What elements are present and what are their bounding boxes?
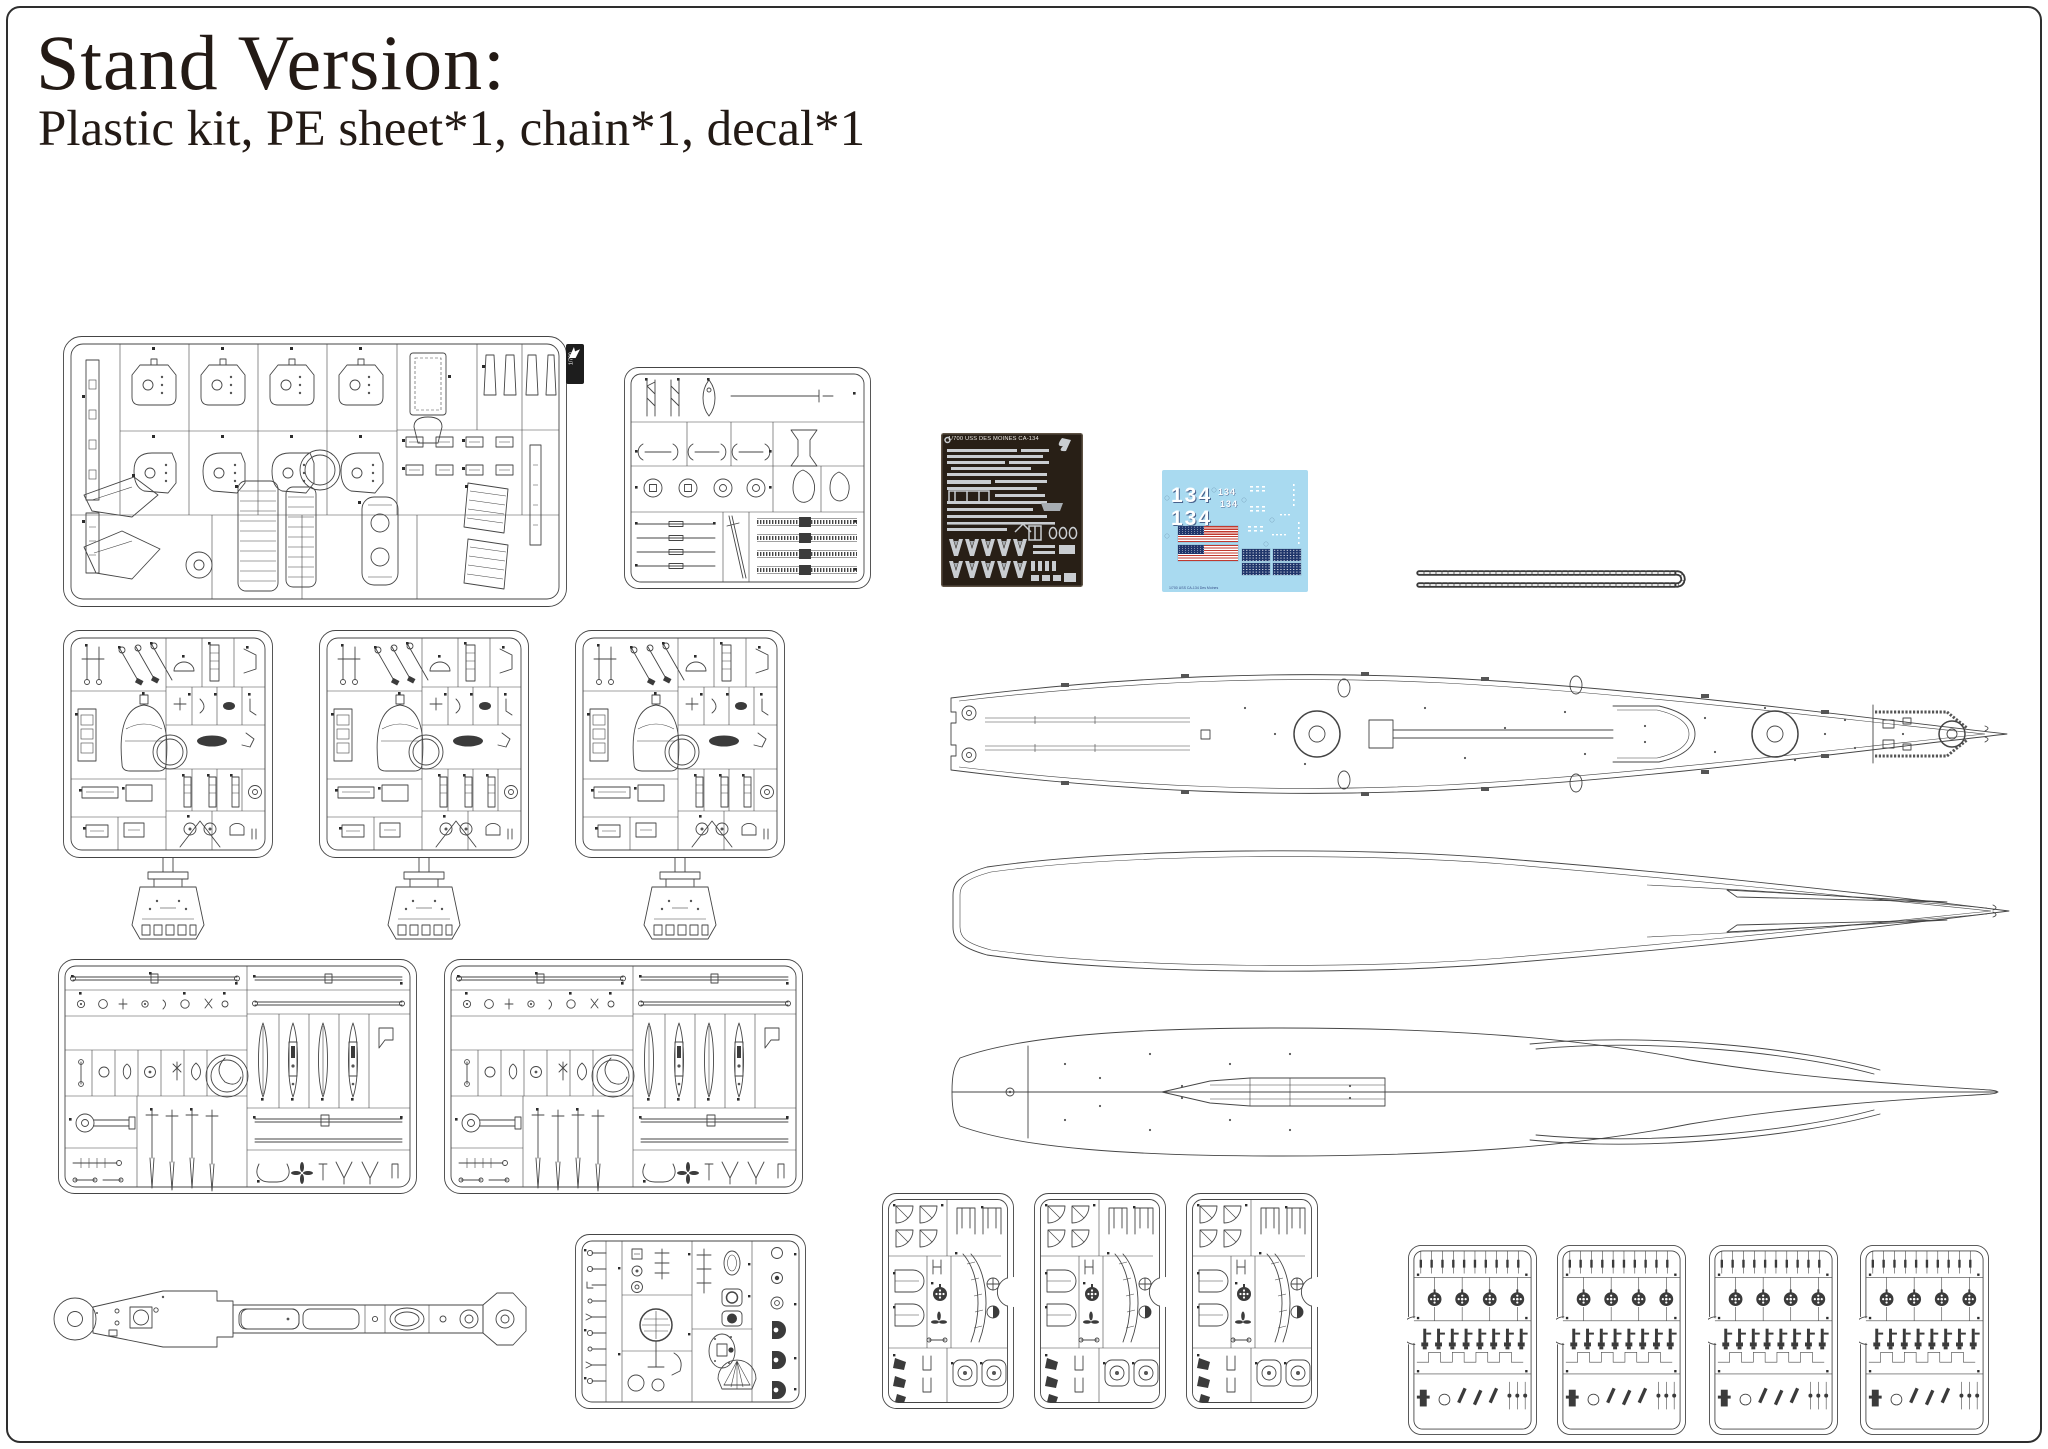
page-title: Stand Version: bbox=[36, 18, 506, 108]
pe-sheet: 1/700 USS DES MOINES CA-134 bbox=[941, 433, 1083, 587]
decal-union-jack bbox=[1242, 549, 1270, 561]
sprue-f-3 bbox=[1185, 1192, 1319, 1410]
sprue-g-1 bbox=[1406, 1244, 1539, 1436]
decal-union-jack bbox=[1273, 563, 1301, 575]
sprue-c-1 bbox=[62, 629, 274, 947]
sprue-d-2 bbox=[443, 958, 804, 1195]
superstructure-deck-part bbox=[45, 1283, 530, 1355]
sprue-d-1 bbox=[57, 958, 418, 1195]
anchor-chain bbox=[1415, 566, 1696, 592]
sprue-a-scale-tag: 1/700 bbox=[566, 344, 584, 384]
decal-union-jack bbox=[1242, 563, 1270, 575]
decal-us-flag bbox=[1178, 526, 1238, 542]
decal-us-flag bbox=[1178, 545, 1238, 561]
sprue-c-3 bbox=[574, 629, 786, 947]
sprue-g-3 bbox=[1707, 1244, 1840, 1436]
page-subtitle: Plastic kit, PE sheet*1, chain*1, decal*… bbox=[38, 100, 865, 158]
hull-part-sides bbox=[947, 845, 2015, 977]
sprue-e-radars bbox=[574, 1233, 807, 1410]
hull-part-bottom bbox=[950, 1022, 2010, 1162]
sprue-c-2 bbox=[318, 629, 530, 947]
decal-union-jack bbox=[1273, 549, 1301, 561]
sprue-b-masts bbox=[623, 366, 872, 590]
sprue-f-2 bbox=[1033, 1192, 1167, 1410]
sprue-f-1 bbox=[881, 1192, 1015, 1410]
sprue-g-2 bbox=[1555, 1244, 1688, 1436]
decal-sheet: 134 134 134 134 1/700 USS CA-134 Des Moi… bbox=[1162, 470, 1308, 592]
decal-footer-text: 1/700 USS CA-134 Des Moines bbox=[1169, 587, 1218, 591]
sprue-a-main bbox=[62, 335, 568, 608]
hull-part-main-deck bbox=[945, 668, 2012, 800]
scale-label: 1/700 bbox=[569, 352, 574, 365]
pe-sheet-title: 1/700 USS DES MOINES CA-134 bbox=[948, 436, 1039, 442]
sprue-g-4 bbox=[1858, 1244, 1991, 1436]
